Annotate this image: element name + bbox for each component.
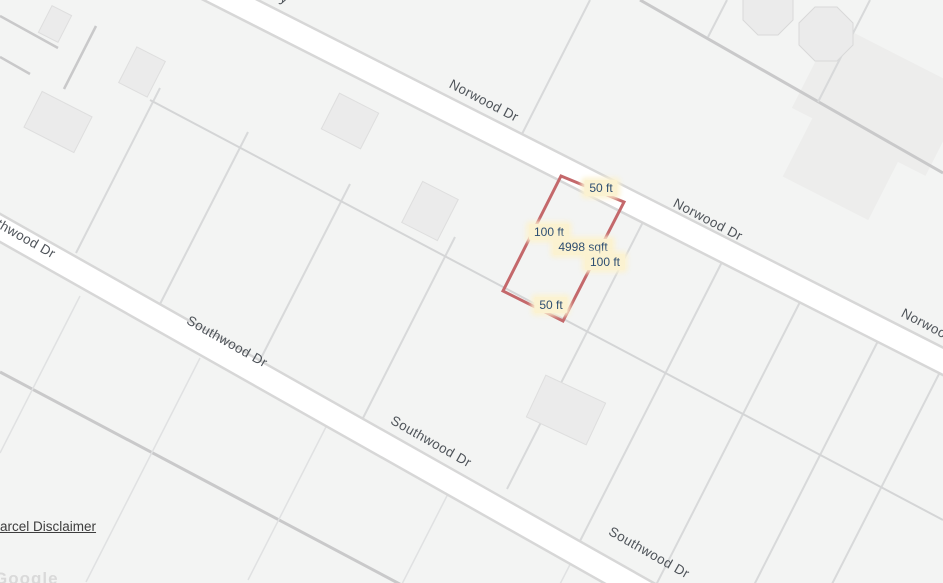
- parcel-dim-bottom: 50 ft: [534, 297, 567, 313]
- parcel-dim-top: 50 ft: [584, 180, 617, 196]
- parcel-dim-right: 100 ft: [585, 254, 625, 270]
- lot-lines-light: [0, 296, 578, 583]
- parcel-map-canvas[interactable]: Norwood Dr Norwood Dr Norwood Dr Southwo…: [0, 0, 943, 583]
- parcel-dim-left: 100 ft: [529, 224, 569, 240]
- street-southwood: [0, 194, 943, 583]
- parcel-disclaimer-link[interactable]: Parcel Disclaimer: [0, 519, 96, 534]
- parcel-area: 4998 sqft: [553, 239, 612, 255]
- google-watermark: Google: [0, 569, 59, 583]
